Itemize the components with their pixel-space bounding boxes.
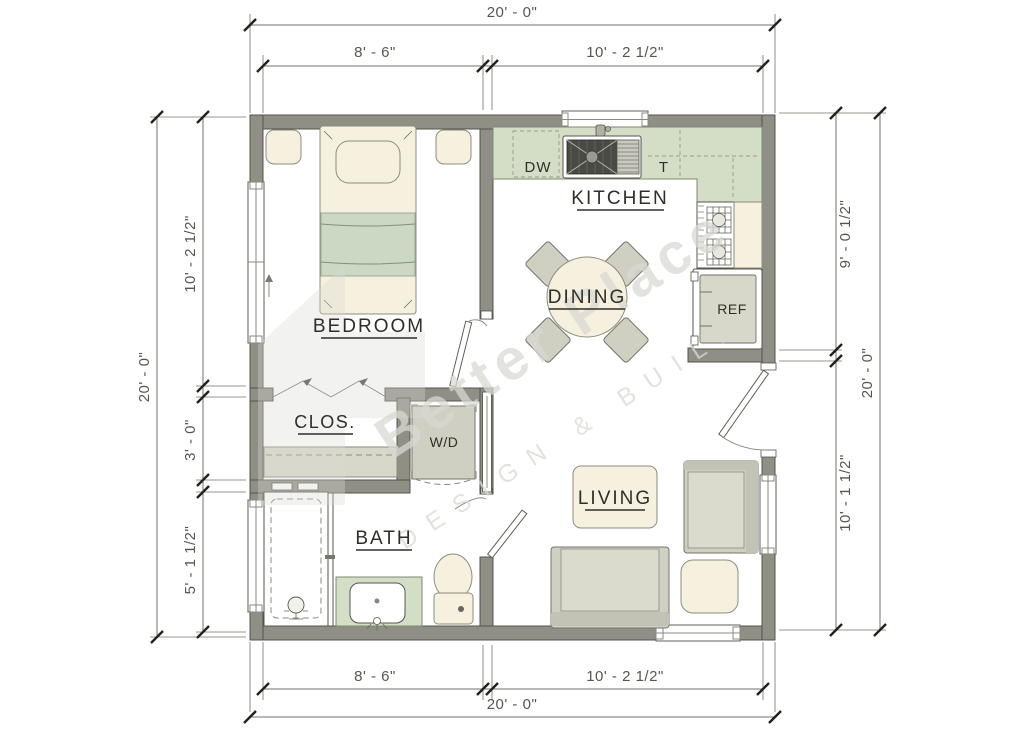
dim-right-top: 9' - 0 1/2"	[837, 200, 854, 269]
swing-direction-arrow	[265, 274, 273, 297]
toilet	[434, 554, 473, 624]
nightstand	[266, 130, 301, 164]
shower-drain	[288, 597, 304, 613]
tall-cabinet-label: T	[659, 159, 669, 176]
sofa	[551, 547, 669, 628]
dim-right-overall: 20' - 0"	[859, 348, 876, 399]
entry-door	[719, 363, 776, 457]
nightstand	[436, 130, 471, 164]
kitchen-label: KITCHEN	[571, 188, 668, 209]
pillow	[336, 141, 400, 183]
washer-dryer-label: W/D	[430, 434, 459, 450]
shower-glass-panel	[328, 493, 333, 626]
window-bedroom	[248, 182, 264, 343]
dimensions-right: 9' - 0 1/2" 10' - 1 1/2" 20' - 0"	[779, 107, 886, 636]
sink-drain	[586, 151, 598, 163]
dim-top-left: 8' - 6"	[354, 44, 396, 61]
bedroom-furniture	[265, 126, 471, 314]
dimensions-left: 20' - 0" 10' - 2 1/2" 3' - 0" 5' - 1 1/2…	[136, 111, 246, 643]
living-label: LIVING	[578, 488, 652, 509]
entry-door-swing	[721, 436, 766, 450]
bath-label: BATH	[355, 528, 412, 549]
window-living-east	[760, 475, 776, 554]
wall-bedroom-east	[480, 129, 493, 319]
door-jamb-bedroom	[481, 311, 492, 319]
dining-label: DINING	[548, 287, 627, 308]
closet-label: CLOS.	[294, 412, 356, 432]
dishwasher-label: DW	[525, 159, 552, 176]
dimensions-bottom: 8' - 6" 10' - 2 1/2" 20' - 0"	[244, 642, 781, 723]
bath-door-leaf	[488, 510, 527, 558]
vanity	[336, 577, 422, 631]
faucet-icon	[596, 125, 605, 136]
sink-drainboard	[617, 140, 639, 174]
dim-top-right: 10' - 2 1/2"	[586, 44, 664, 61]
fridge-label: REF	[717, 301, 747, 317]
vanity-faucet	[374, 618, 381, 625]
wall-bath-east	[480, 557, 493, 626]
dim-bottom-left: 8' - 6"	[354, 668, 396, 685]
dim-bottom-overall: 20' - 0"	[487, 696, 538, 713]
living-furniture	[551, 461, 758, 628]
dim-top-overall: 20' - 0"	[487, 4, 538, 21]
counter-beside-range	[734, 202, 762, 268]
window-bath	[248, 500, 264, 612]
dim-left-middle: 3' - 0"	[182, 419, 199, 461]
shower-door-handle	[325, 555, 335, 559]
dim-left-overall: 20' - 0"	[136, 352, 153, 403]
ottoman	[681, 560, 738, 613]
dim-bottom-right: 10' - 2 1/2"	[586, 668, 664, 685]
armchair	[684, 461, 758, 553]
floor-plan-drawing: Better Place DESIGN & BUILD BEDROOM KITC…	[0, 0, 1024, 737]
dim-left-top: 10' - 2 1/2"	[182, 215, 199, 293]
bedroom-label: BEDROOM	[313, 316, 425, 337]
dimensions-top: 20' - 0" 8' - 6" 10' - 2 1/2"	[244, 4, 781, 113]
floor-plan-page: Better Place DESIGN & BUILD BEDROOM KITC…	[0, 0, 1024, 737]
blanket	[321, 213, 415, 276]
dim-right-bottom: 10' - 1 1/2"	[837, 454, 854, 532]
dim-left-bottom: 5' - 1 1/2"	[182, 526, 199, 595]
